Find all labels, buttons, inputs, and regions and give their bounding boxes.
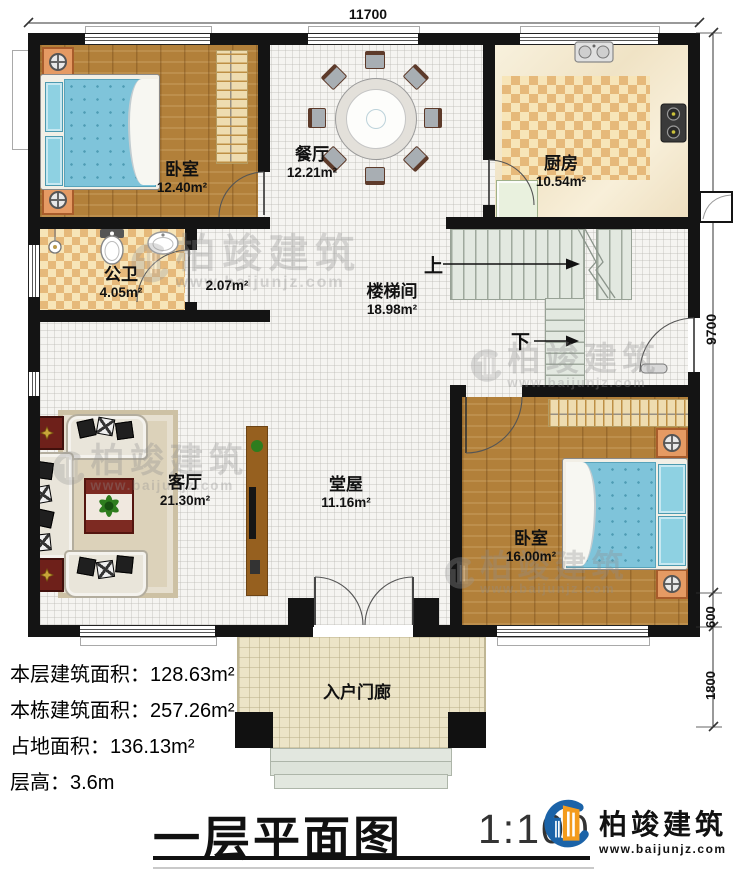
stat-label: 占地面积： <box>10 736 110 758</box>
lamp-icon <box>663 434 681 452</box>
dim-top: 11700 <box>349 6 387 22</box>
porch-step <box>274 774 448 789</box>
sofa-cushion <box>76 418 96 438</box>
window <box>308 33 418 45</box>
bed-pillow <box>45 82 63 132</box>
window <box>497 625 648 637</box>
stat-value: 257.26m² <box>150 700 235 722</box>
room-label-bathroom: 公卫4.05m² <box>100 266 143 301</box>
stat-value: 136.13m² <box>110 736 195 758</box>
bed-pillow <box>658 464 686 514</box>
sofa-cushion <box>77 557 97 577</box>
title-underline-thin <box>153 867 594 869</box>
wardrobe <box>548 399 690 427</box>
bed-blanket <box>128 79 158 185</box>
watermark: 柏竣建筑www.baijunjz.com <box>50 444 248 493</box>
watermark-logo-icon <box>50 448 86 489</box>
nightstand <box>42 47 74 77</box>
fridge <box>496 180 538 218</box>
lamp-icon <box>49 191 67 209</box>
stair-down-label: 下 <box>511 327 530 354</box>
bed-pillow <box>45 136 63 186</box>
room-label-kitchen: 厨房10.54m² <box>536 155 586 190</box>
room-label-stairhall: 楼梯间18.98m² <box>367 283 418 318</box>
stair-up-label: 上 <box>424 251 443 278</box>
stair-upper-flight <box>596 229 632 300</box>
stat-value: 128.63m² <box>150 664 235 686</box>
porch-pillar-left <box>235 712 273 748</box>
dining-chair <box>424 108 442 128</box>
wardrobe <box>216 50 248 164</box>
stair-up-flight <box>450 229 585 300</box>
watermark: 柏竣建筑www.baijunjz.com <box>468 342 660 389</box>
room-label-dining: 餐厅12.21m² <box>287 146 337 181</box>
brand-url: www.baijunjz.com <box>599 842 727 856</box>
window-sill <box>80 637 217 646</box>
dining-table-center <box>366 109 386 129</box>
lamp-icon <box>49 53 67 71</box>
sofa-cushion <box>115 555 134 574</box>
dining-chair <box>365 51 385 69</box>
tv-cabinet <box>246 426 268 596</box>
bed-pillow <box>658 516 686 566</box>
dim-right-porch: 1800 <box>703 671 718 700</box>
window <box>85 33 210 45</box>
window-sill <box>497 637 650 646</box>
stat-label: 本层建筑面积： <box>10 664 150 686</box>
watermark-logo-icon <box>468 346 503 386</box>
stat-label: 层高： <box>10 772 70 794</box>
porch-pillar-right <box>448 712 486 748</box>
brand-logo-icon <box>540 795 592 853</box>
table-runner <box>86 494 132 520</box>
stats-block: 本层建筑面积：128.63m² 本栋建筑面积：257.26m² 占地面积：136… <box>10 658 235 802</box>
lamp-icon <box>663 575 681 593</box>
room-label-living: 客厅21.30m² <box>160 474 210 509</box>
room-label-porch: 入户门廊 <box>323 684 391 703</box>
floor-plan: 柏竣建筑www.baijunjz.com 柏竣建筑www.baijunjz.co… <box>0 0 750 879</box>
dining-chair <box>365 167 385 185</box>
sofa-cushion <box>96 560 115 579</box>
brand-name: 柏竣建筑 <box>599 803 727 843</box>
nightstand <box>656 569 688 599</box>
window <box>28 245 40 297</box>
title-underline <box>153 856 590 860</box>
window <box>28 372 40 396</box>
side-landing <box>700 192 732 222</box>
window <box>80 625 215 637</box>
sofa-cushion <box>115 421 134 440</box>
stat-value: 3.6m <box>70 772 114 794</box>
room-label-corridor: 2.07m² <box>206 278 249 294</box>
dining-chair <box>308 108 326 128</box>
nightstand <box>656 428 688 458</box>
room-label-hall: 堂屋11.16m² <box>321 476 371 511</box>
dim-right-step: 600 <box>703 606 718 628</box>
stat-label: 本栋建筑面积： <box>10 700 150 722</box>
room-label-bedroom-br: 卧室16.00m² <box>506 530 556 565</box>
room-label-bedroom-tl: 卧室12.40m² <box>157 161 207 196</box>
sofa-cushion <box>96 417 116 437</box>
window <box>520 33 658 45</box>
watermark-logo-icon <box>442 554 476 592</box>
dim-right-total: 9700 <box>703 314 719 345</box>
